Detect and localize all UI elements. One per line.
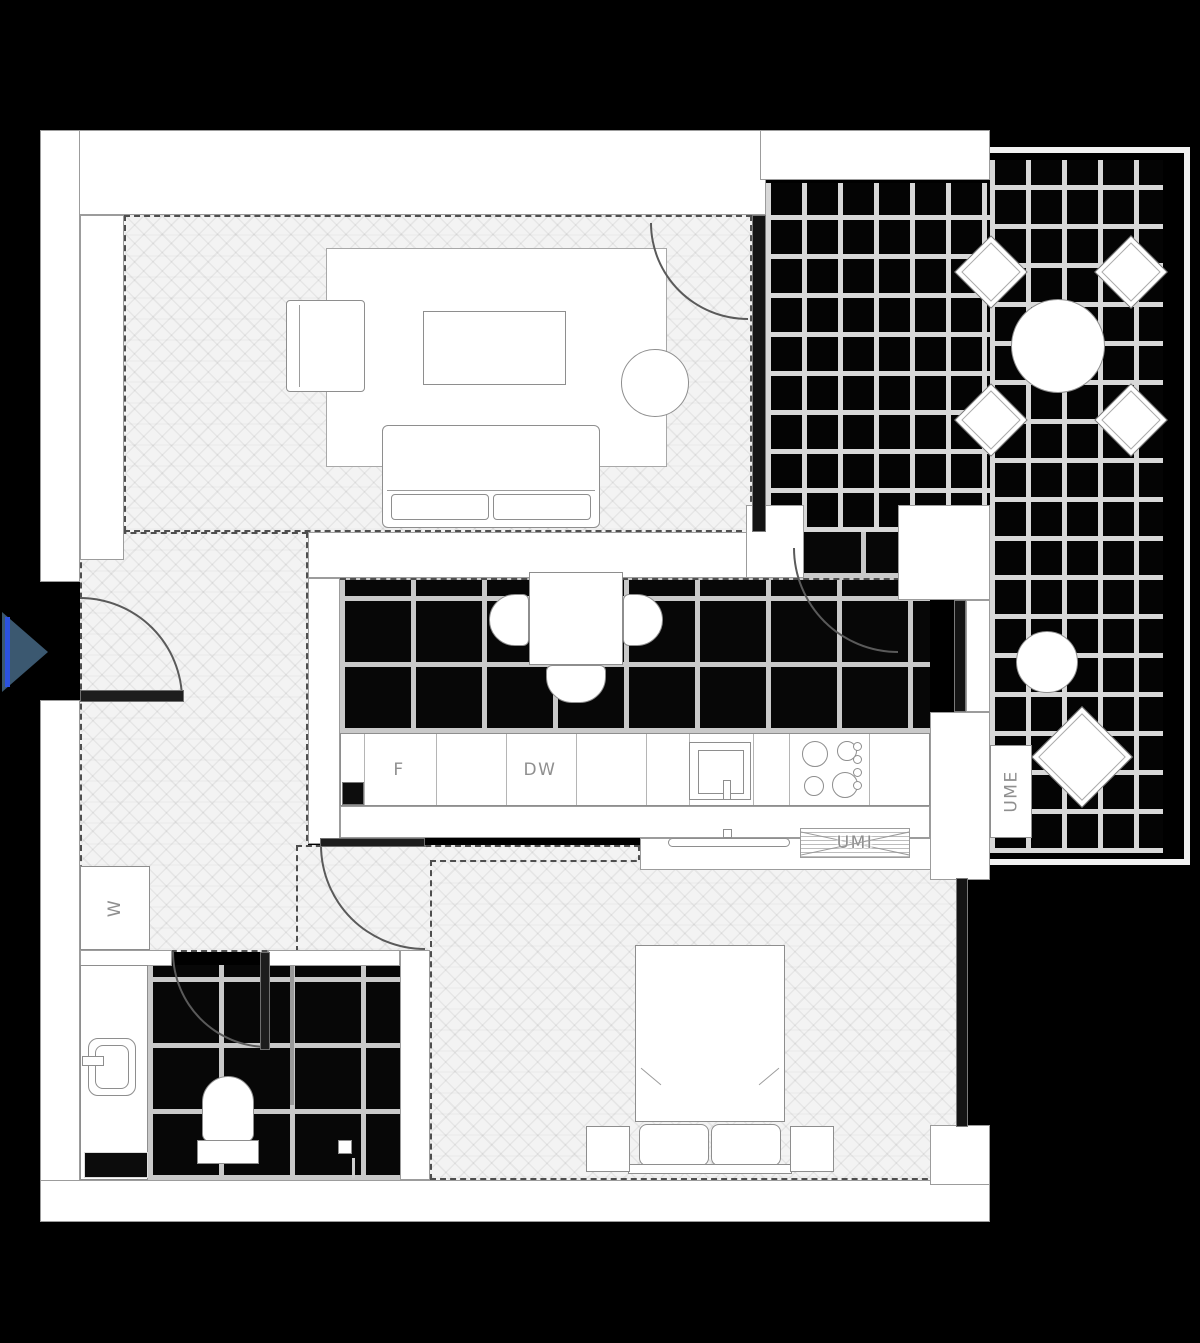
wall-block-se-kitchen xyxy=(930,712,990,880)
dining-table xyxy=(529,572,623,665)
wall-kitchen-stub xyxy=(308,578,340,844)
bed-fold-left xyxy=(641,1068,662,1085)
shower-drain xyxy=(338,1140,352,1154)
bed xyxy=(635,945,785,1122)
bathroom-bench xyxy=(84,1152,148,1178)
sofa-seat-line xyxy=(387,490,595,491)
washer: W xyxy=(80,866,150,950)
sofa xyxy=(382,425,600,528)
nightstand-right xyxy=(790,1126,834,1172)
terrace-tiles-upper xyxy=(766,183,990,532)
terrace-table xyxy=(1011,299,1105,393)
wall-top-right xyxy=(760,130,990,180)
bed-fold-right xyxy=(759,1068,780,1085)
armchair xyxy=(286,300,365,392)
wall-east-of-glass xyxy=(966,600,990,712)
shower-partition xyxy=(290,965,294,1105)
kitchen-sink xyxy=(689,742,751,800)
washer-label: W xyxy=(74,874,156,942)
bathroom-sink-basin xyxy=(95,1045,129,1089)
tv-bedroom xyxy=(668,838,790,847)
fridge-label: F xyxy=(363,745,435,795)
side-table xyxy=(621,349,689,417)
wall-block-ne-kitchen xyxy=(898,505,990,600)
sofa-cushion xyxy=(493,494,591,520)
radiator-kitchen-label: UMI xyxy=(801,829,909,857)
entry-door-leaf xyxy=(80,690,184,702)
counter-dark-module xyxy=(342,782,364,805)
toilet-tank xyxy=(197,1140,259,1164)
bathroom-tap xyxy=(82,1056,104,1066)
kitchen-sink-basin xyxy=(698,750,744,794)
kitchen-sink-tap xyxy=(723,780,731,800)
shower-handle xyxy=(352,1158,355,1178)
passage-door-leaf xyxy=(320,838,425,847)
window-kitchen-terrace xyxy=(954,600,966,712)
wall-bedroom-east-lower xyxy=(930,1125,990,1185)
entry-arrow-line xyxy=(5,617,10,687)
sofa-cushion xyxy=(391,494,489,520)
toilet-bowl xyxy=(202,1076,254,1142)
floor-plan: UMI UME xyxy=(0,0,1200,1343)
outdoor-unit: UME xyxy=(990,745,1032,838)
wall-left-upper xyxy=(40,130,80,582)
bed-pillow-left xyxy=(639,1124,709,1166)
bed-pillow-right xyxy=(711,1124,781,1166)
window-bedroom xyxy=(956,878,968,1127)
bathroom-sink xyxy=(88,1038,136,1096)
wall-bathroom-north-left xyxy=(80,950,172,966)
wall-top-main xyxy=(40,130,766,215)
tv-bedroom-mount xyxy=(723,829,732,838)
coffee-table xyxy=(423,311,566,385)
wall-bathroom-north-right xyxy=(268,950,400,966)
terrace-stool xyxy=(1016,631,1078,693)
dishwasher-label: DW xyxy=(505,745,575,795)
bathroom-door-leaf xyxy=(260,952,270,1050)
window-living-terrace xyxy=(752,215,766,532)
bed-headboard xyxy=(628,1164,792,1174)
wall-pilaster-left xyxy=(80,215,124,560)
wall-left-lower xyxy=(40,700,80,1222)
nightstand-left xyxy=(586,1126,630,1172)
radiator-kitchen: UMI xyxy=(800,828,910,858)
wall-bottom xyxy=(40,1180,990,1222)
wall-bathroom-east xyxy=(400,950,430,1180)
armchair-backrest xyxy=(299,305,300,387)
